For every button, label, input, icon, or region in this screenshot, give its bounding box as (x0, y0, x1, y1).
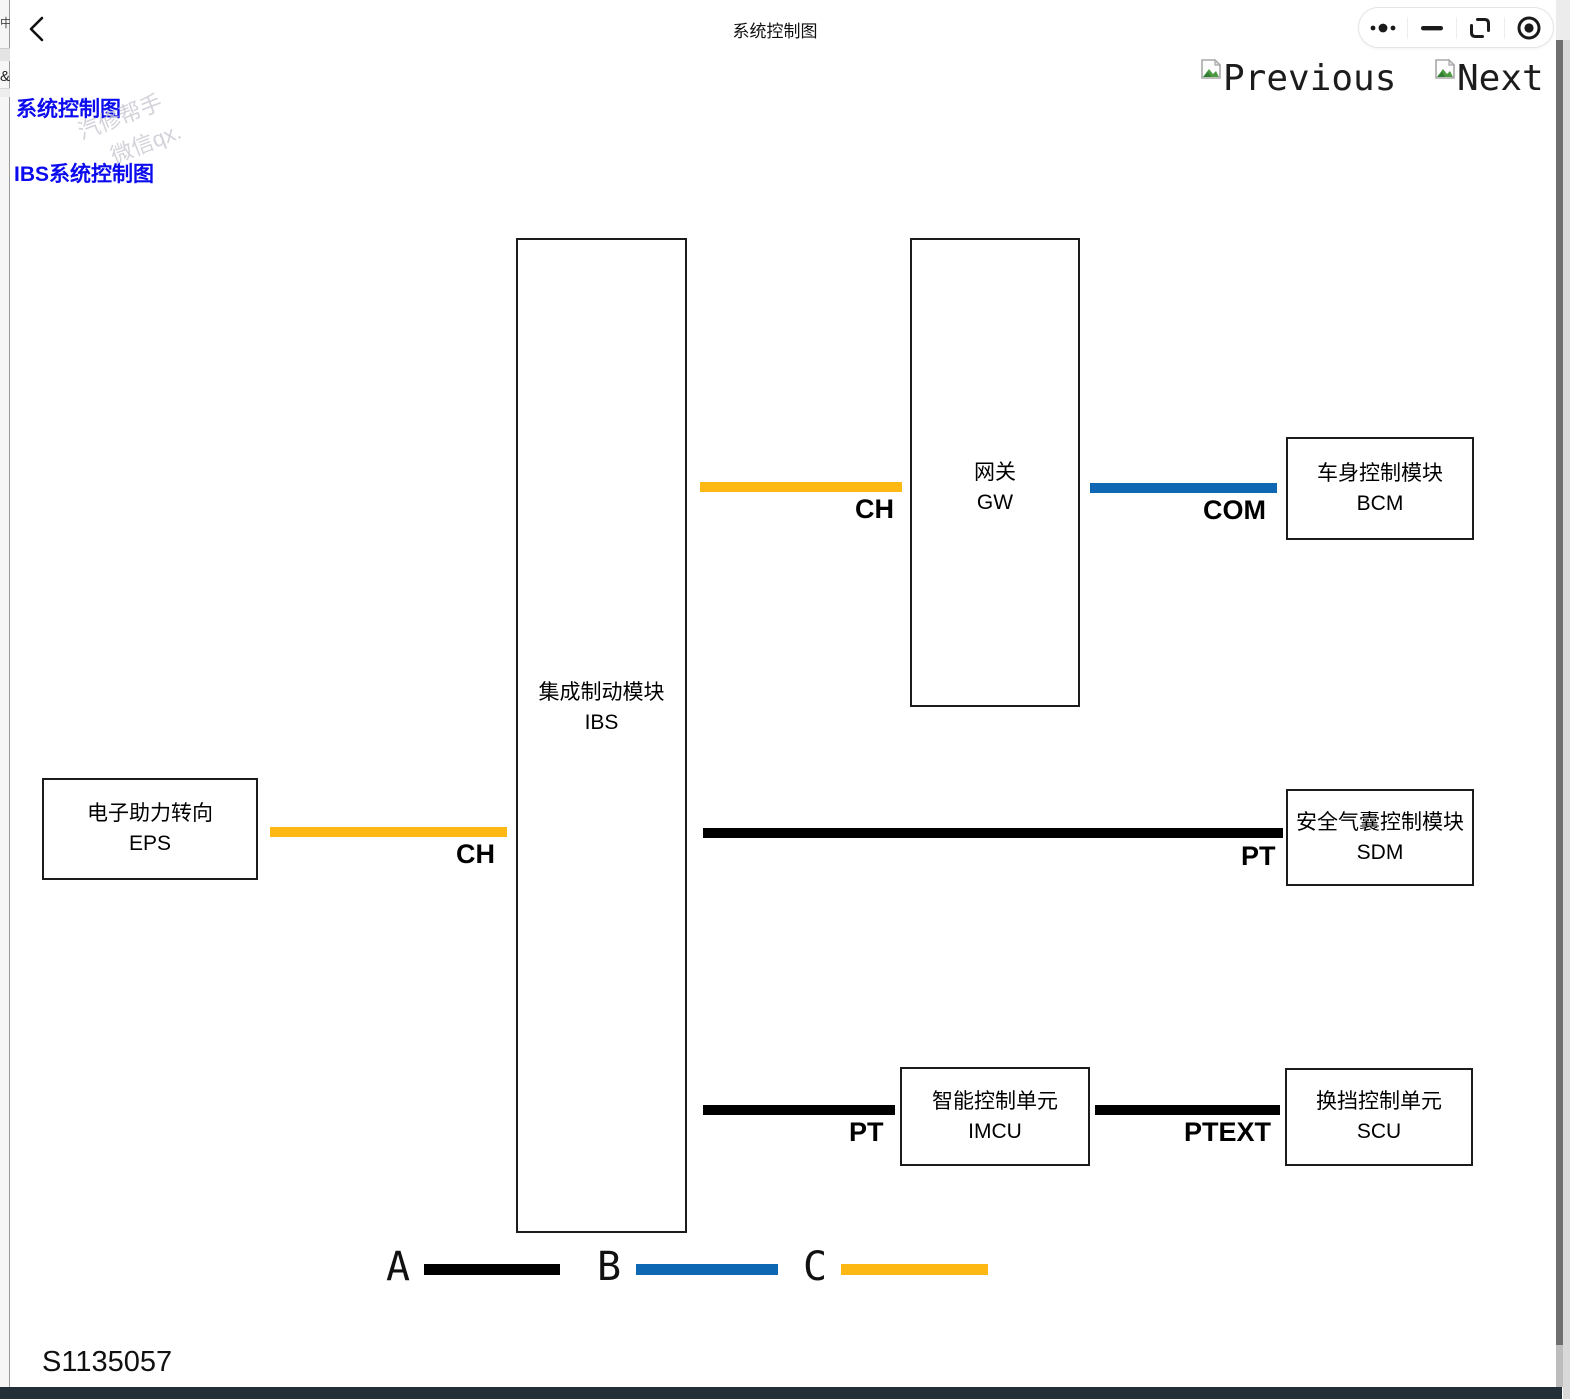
previous-link[interactable]: Previous (1201, 58, 1396, 100)
node-label-cn: 电子助力转向 (87, 799, 213, 829)
connection-label-ptext: PTEXT (1184, 1117, 1271, 1148)
connection-ibs-gw (700, 482, 902, 492)
background-window-corner (1556, 0, 1570, 40)
node-label-cn: 车身控制模块 (1317, 459, 1443, 489)
edge-band (0, 88, 10, 97)
legend-swatch-b (636, 1264, 778, 1275)
target-button[interactable] (1505, 8, 1553, 47)
connection-label-pt-imcu: PT (849, 1117, 884, 1148)
connection-label-com: COM (1203, 495, 1266, 526)
node-label-en: BCM (1357, 489, 1404, 519)
broken-image-icon (1435, 59, 1455, 79)
more-icon (1369, 22, 1397, 34)
node-bcm: 车身控制模块 BCM (1286, 437, 1474, 540)
node-sdm: 安全气囊控制模块 SDM (1286, 789, 1474, 886)
connection-ibs-sdm (703, 828, 1283, 838)
previous-label: Previous (1223, 58, 1396, 100)
figure-id: S1135057 (42, 1346, 172, 1379)
node-label-cn: 集成制动模块 (539, 678, 665, 708)
relaunch-icon (1468, 16, 1492, 40)
minimize-button[interactable] (1408, 8, 1456, 47)
edge-text-fragment: 中/ (0, 14, 10, 31)
window-scrollbar-strip-lower (1556, 1345, 1563, 1387)
target-icon (1516, 15, 1542, 41)
legend-label-a: A (386, 1247, 410, 1287)
node-label-cn: 智能控制单元 (932, 1087, 1058, 1117)
edge-text-fragment: & (0, 68, 10, 85)
link-system-control-diagram[interactable]: 系统控制图 (16, 93, 121, 123)
node-gw: 网关 GW (910, 238, 1080, 707)
background-window-edge-left: 中/ & (0, 0, 10, 1399)
window-scrollbar-strip[interactable] (1556, 40, 1563, 1345)
broken-image-icon (1201, 59, 1221, 79)
node-ibs: 集成制动模块 IBS (516, 238, 687, 1233)
connection-label-ch-gw: CH (855, 494, 894, 525)
node-scu: 换挡控制单元 SCU (1285, 1068, 1473, 1166)
legend-swatch-a (424, 1264, 560, 1275)
taskbar-strip (0, 1387, 1562, 1399)
node-label-cn: 安全气囊控制模块 (1296, 808, 1464, 838)
node-label-en: GW (977, 488, 1013, 518)
node-eps: 电子助力转向 EPS (42, 778, 258, 880)
background-window-edge-right (1563, 0, 1570, 1399)
legend-label-b: B (597, 1247, 621, 1287)
legend-label-c: C (803, 1247, 827, 1287)
connection-eps-ibs (270, 827, 507, 837)
connection-gw-bcm (1090, 483, 1277, 493)
minimize-icon (1420, 25, 1444, 31)
node-label-en: IBS (585, 708, 619, 738)
relaunch-button[interactable] (1457, 8, 1505, 47)
next-label: Next (1457, 58, 1544, 100)
node-label-cn: 网关 (974, 458, 1016, 488)
node-label-en: SDM (1357, 838, 1404, 868)
page-title: 系统控制图 (0, 17, 1550, 42)
next-link[interactable]: Next (1435, 58, 1544, 100)
legend-swatch-c (841, 1264, 988, 1275)
connection-label-ch-eps: CH (456, 839, 495, 870)
window-capsule (1358, 7, 1554, 48)
connection-imcu-scu (1095, 1105, 1280, 1115)
node-imcu: 智能控制单元 IMCU (900, 1067, 1090, 1166)
node-label-en: EPS (129, 829, 171, 859)
node-label-en: IMCU (968, 1117, 1022, 1147)
edge-band (0, 48, 10, 61)
link-ibs-system-control-diagram[interactable]: IBS系统控制图 (14, 158, 154, 188)
app-window: 中/ & 系统控制图 (0, 0, 1570, 1399)
node-label-cn: 换挡控制单元 (1316, 1087, 1442, 1117)
node-label-en: SCU (1357, 1117, 1401, 1147)
connection-label-pt-sdm: PT (1241, 841, 1276, 872)
more-button[interactable] (1359, 8, 1407, 47)
connection-ibs-imcu (703, 1105, 895, 1115)
